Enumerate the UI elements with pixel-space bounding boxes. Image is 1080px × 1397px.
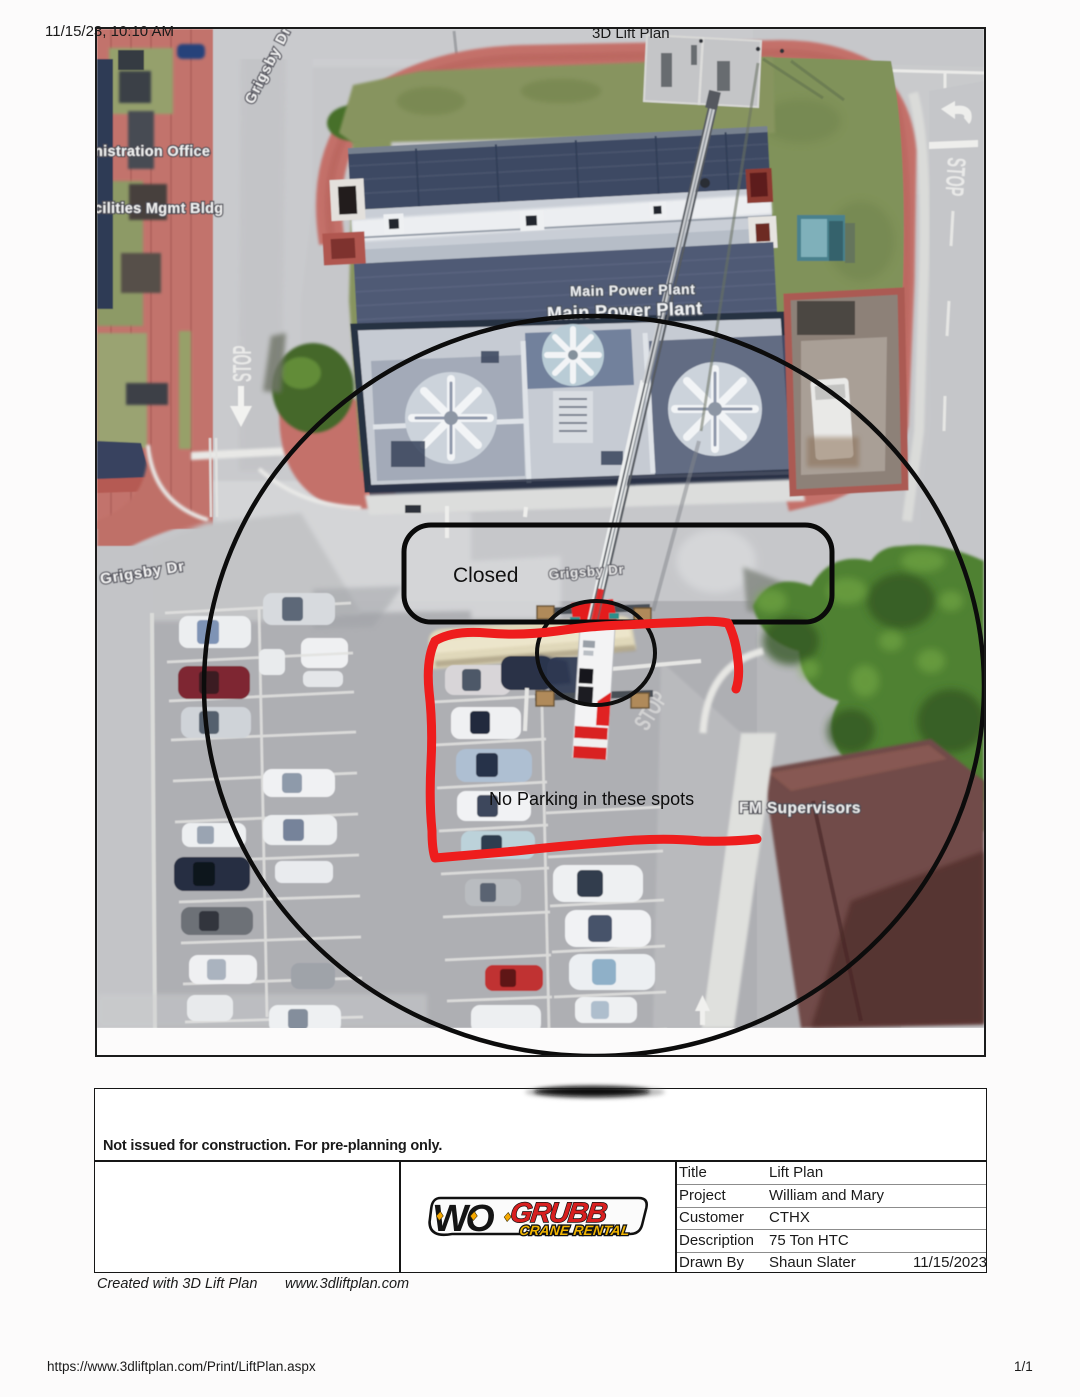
- svg-text:Main Power Plant: Main Power Plant: [570, 281, 696, 299]
- svg-text:Closed: Closed: [453, 564, 518, 587]
- svg-text:cilities Mgmt Bldg: cilities Mgmt Bldg: [97, 201, 223, 217]
- svg-text:CRANE RENTAL: CRANE RENTAL: [519, 1223, 631, 1238]
- svg-text:No Parking in these spots: No Parking in these spots: [489, 789, 694, 809]
- svg-text:FM Supervisors: FM Supervisors: [739, 800, 861, 817]
- svg-text:STOP: STOP: [228, 345, 257, 382]
- svg-text:STOP: STOP: [939, 157, 970, 198]
- svg-text:nistration Office: nistration Office: [97, 144, 210, 160]
